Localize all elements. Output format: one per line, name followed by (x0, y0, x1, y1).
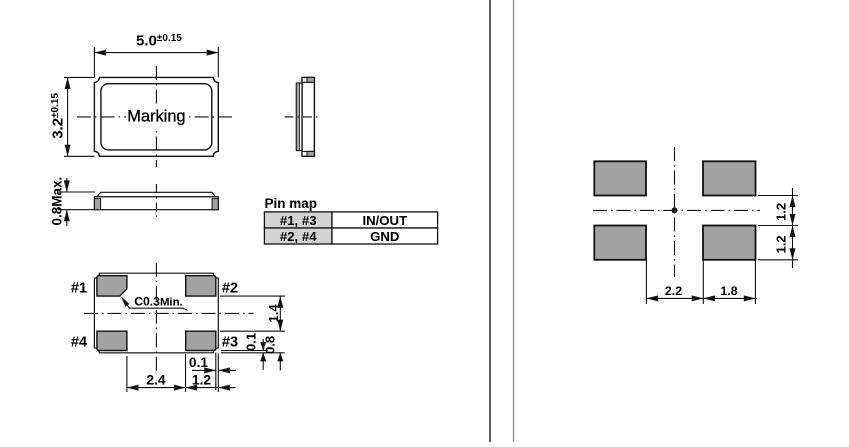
svg-text:2.2: 2.2 (665, 284, 682, 298)
svg-text:0.8Max.: 0.8Max. (50, 177, 65, 226)
svg-text:2.4: 2.4 (146, 373, 166, 388)
svg-text:#2: #2 (222, 281, 238, 297)
svg-text:#4: #4 (71, 335, 87, 351)
svg-text:0.1: 0.1 (244, 333, 259, 351)
svg-text:Marking: Marking (127, 108, 185, 126)
svg-text:IN/OUT: IN/OUT (362, 213, 407, 228)
svg-text:1.4: 1.4 (266, 304, 281, 323)
svg-text:#1: #1 (71, 281, 87, 297)
svg-text:1.2: 1.2 (774, 203, 789, 221)
svg-text:0.1: 0.1 (189, 355, 209, 370)
svg-text:#2, #4: #2, #4 (280, 229, 317, 244)
svg-text:Pin map: Pin map (265, 196, 318, 211)
svg-text:1.2: 1.2 (192, 373, 212, 388)
svg-text:#1, #3: #1, #3 (280, 213, 317, 228)
svg-text:C0.3Min.: C0.3Min. (134, 294, 183, 308)
svg-text:1.8: 1.8 (720, 284, 737, 298)
svg-text:1.2: 1.2 (774, 235, 789, 253)
svg-text:#3: #3 (222, 335, 238, 351)
svg-text:GND: GND (370, 229, 399, 244)
